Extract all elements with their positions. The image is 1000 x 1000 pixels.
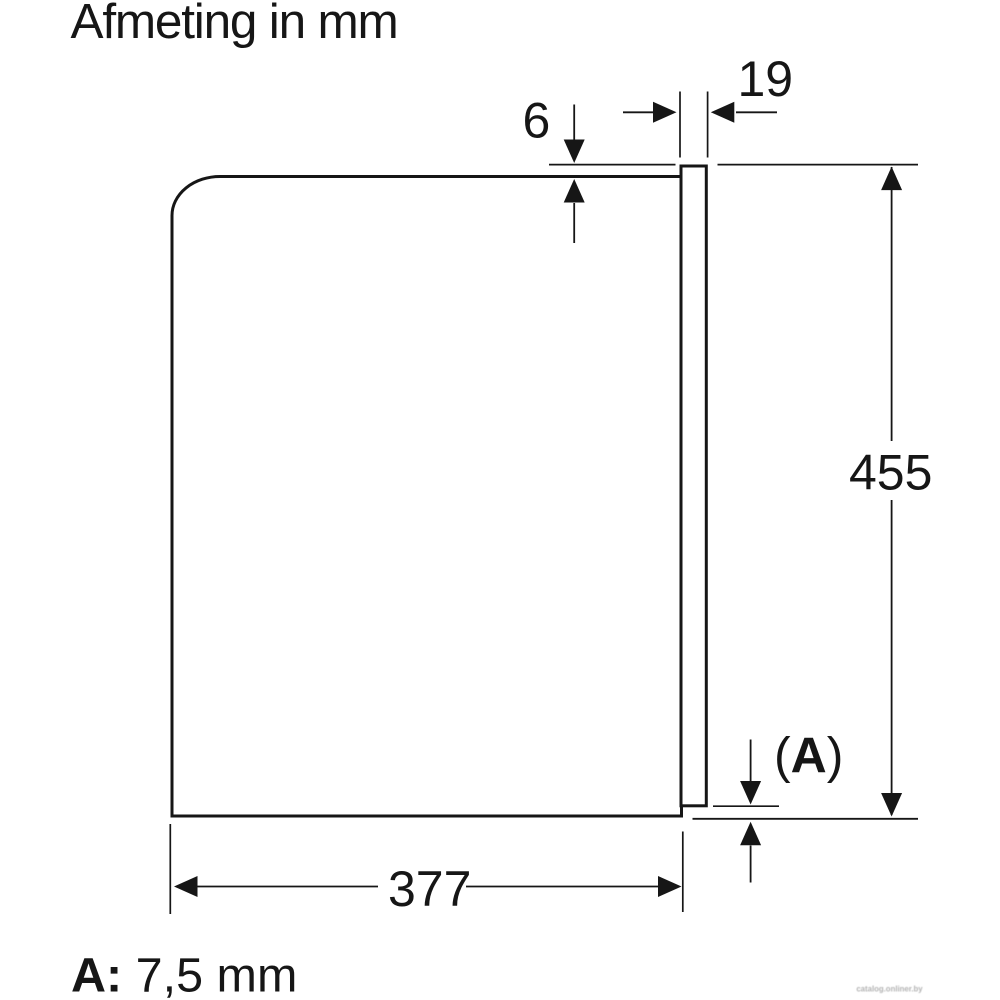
svg-text:A: 7,5 mm: A: 7,5 mm bbox=[71, 949, 297, 1000]
svg-text:19: 19 bbox=[738, 51, 794, 107]
svg-text:Afmeting in mm: Afmeting in mm bbox=[71, 0, 398, 49]
svg-text:catalog.onliner.by: catalog.onliner.by bbox=[856, 985, 923, 994]
svg-text:6: 6 bbox=[523, 93, 551, 149]
svg-text:377: 377 bbox=[388, 861, 471, 917]
svg-text:(A): (A) bbox=[774, 728, 843, 784]
svg-text:455: 455 bbox=[849, 445, 932, 501]
